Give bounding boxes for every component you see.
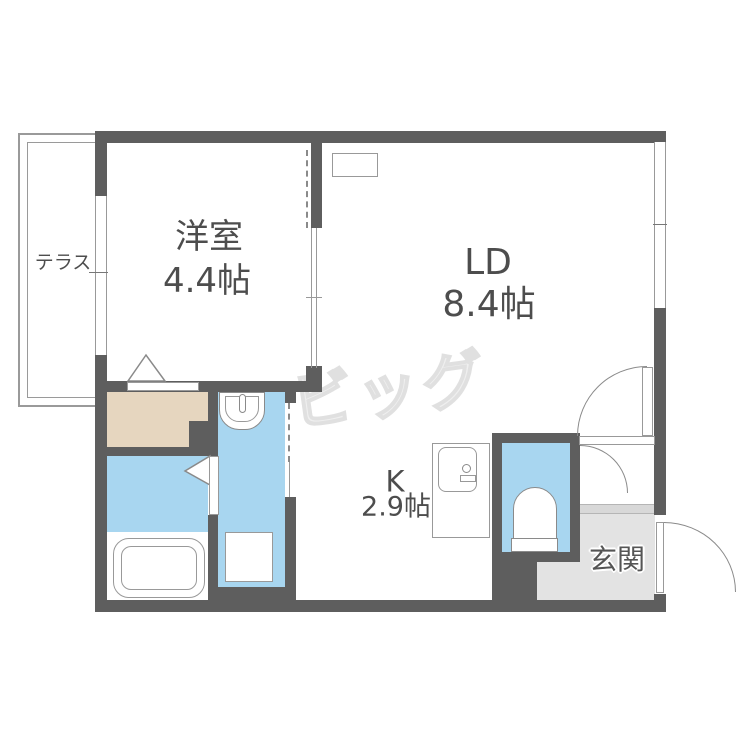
- entry-door-leaf: [656, 522, 664, 593]
- washroom-door-dashed: [288, 403, 290, 462]
- terrace-label: テラス: [35, 254, 92, 273]
- ld-size: 8.4帖: [442, 287, 535, 323]
- ld-label: LD: [464, 245, 512, 281]
- western-room-door-triangle: [0, 0, 750, 750]
- western-room-size: 4.4帖: [163, 264, 251, 298]
- hall-opening: [579, 436, 655, 445]
- kitchen-size: 2.9帖: [361, 494, 431, 521]
- bathroom-door-leaf: [209, 456, 219, 515]
- floor-plan: ビッグ テラス 洋室 4.4帖 LD 8.4帖 K 2.9帖: [0, 0, 750, 750]
- western-room-label: 洋室: [175, 220, 243, 254]
- washroom-door-panel: [289, 462, 290, 497]
- ld-door-leaf: [642, 367, 653, 436]
- entrance-label: 玄関: [589, 546, 645, 574]
